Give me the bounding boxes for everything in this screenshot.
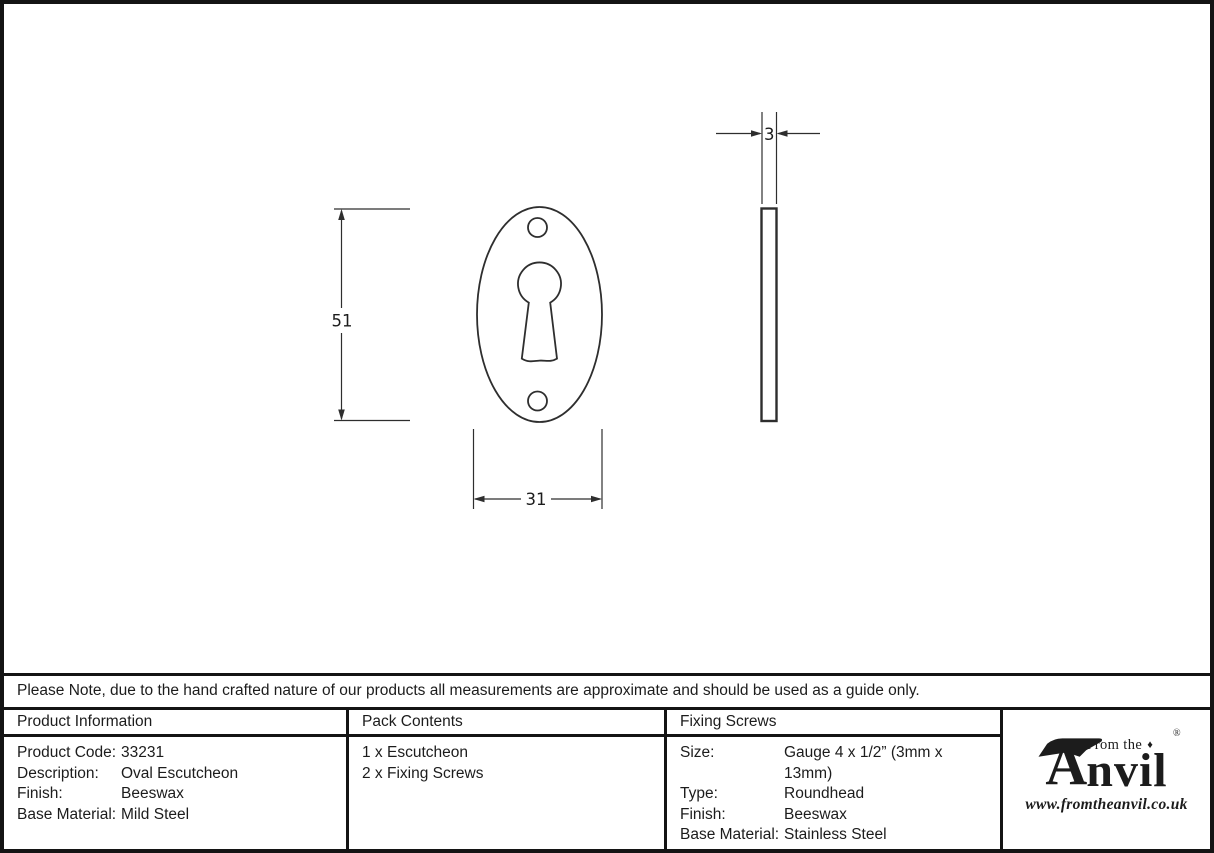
table-row: Base Material: Mild Steel [17,805,336,826]
fixing-screws-header: Fixing Screws [667,710,1000,737]
arrow-down-icon [338,410,345,421]
arrow-inward-right-icon [751,130,762,137]
product-information-header: Product Information [4,710,346,737]
escutcheon-oval-outline [477,207,602,422]
screw-size-value: Gauge 4 x 1/2” (3mm x 13mm) [784,743,990,784]
description-label: Description: [17,764,121,785]
arrow-inward-left-icon [777,130,788,137]
table-row: Finish: Beeswax [17,784,336,805]
description-value: Oval Escutcheon [121,764,336,785]
screw-finish-label: Finish: [680,805,784,826]
list-item: 2 x Fixing Screws [362,764,654,785]
from-the-anvil-logo: A From the♦ nvil ® www.fromtheanvil.co.u… [1025,737,1187,814]
logo-letter-a-wrap: A [1045,741,1087,789]
dim-thickness-label: 3 [764,125,775,144]
screw-type-label: Type: [680,784,784,805]
product-code-label: Product Code: [17,743,121,764]
screw-base-material-value: Stainless Steel [784,825,990,846]
technical-drawing: 51 31 3 [4,4,1210,673]
arrow-right-icon [591,496,602,503]
logo-cell: A From the♦ nvil ® www.fromtheanvil.co.u… [1003,710,1210,849]
keyhole-outline [518,262,561,361]
base-material-label: Base Material: [17,805,121,826]
finish-label: Finish: [17,784,121,805]
measurement-note: Please Note, due to the hand crafted nat… [4,673,1210,707]
table-row: Type: Roundhead [680,784,990,805]
side-view-plate [762,209,777,422]
arrow-left-icon [474,496,485,503]
table-row: Description: Oval Escutcheon [17,764,336,785]
screw-size-label: Size: [680,743,784,784]
anvil-icon [1036,734,1106,760]
arrow-up-icon [338,209,345,220]
dim-width-label: 31 [526,490,547,509]
registered-trademark-icon: ® [1173,728,1181,739]
screw-base-material-label: Base Material: [680,825,784,846]
logo-wordmark: A From the♦ nvil ® [1045,737,1167,789]
table-row: Finish: Beeswax [680,805,990,826]
fixing-screws-column: Fixing Screws Size: Gauge 4 x 1/2” (3mm … [667,710,1003,849]
screw-finish-value: Beeswax [784,805,990,826]
pack-contents-body: 1 x Escutcheon 2 x Fixing Screws [349,737,664,784]
dim-height-label: 51 [332,312,353,331]
product-code-value: 33231 [121,743,336,764]
screw-type-value: Roundhead [784,784,990,805]
finish-value: Beeswax [121,784,336,805]
pack-contents-column: Pack Contents 1 x Escutcheon 2 x Fixing … [349,710,667,849]
spec-table: Product Information Product Code: 33231 … [4,707,1210,849]
table-row: Base Material: Stainless Steel [680,825,990,846]
screw-hole-top [528,218,547,237]
spec-sheet-page: 51 31 3 Please Note, due to the hand cra… [0,0,1214,853]
technical-drawing-area: 51 31 3 [4,4,1210,673]
screw-hole-bottom [528,392,547,411]
logo-website-url: www.fromtheanvil.co.uk [1025,796,1187,814]
product-information-column: Product Information Product Code: 33231 … [4,710,349,849]
list-item: 1 x Escutcheon [362,743,654,764]
table-row: Product Code: 33231 [17,743,336,764]
product-information-body: Product Code: 33231 Description: Oval Es… [4,737,346,825]
pack-contents-header: Pack Contents [349,710,664,737]
table-row: Size: Gauge 4 x 1/2” (3mm x 13mm) [680,743,990,784]
base-material-value: Mild Steel [121,805,336,826]
fixing-screws-body: Size: Gauge 4 x 1/2” (3mm x 13mm) Type: … [667,737,1000,846]
